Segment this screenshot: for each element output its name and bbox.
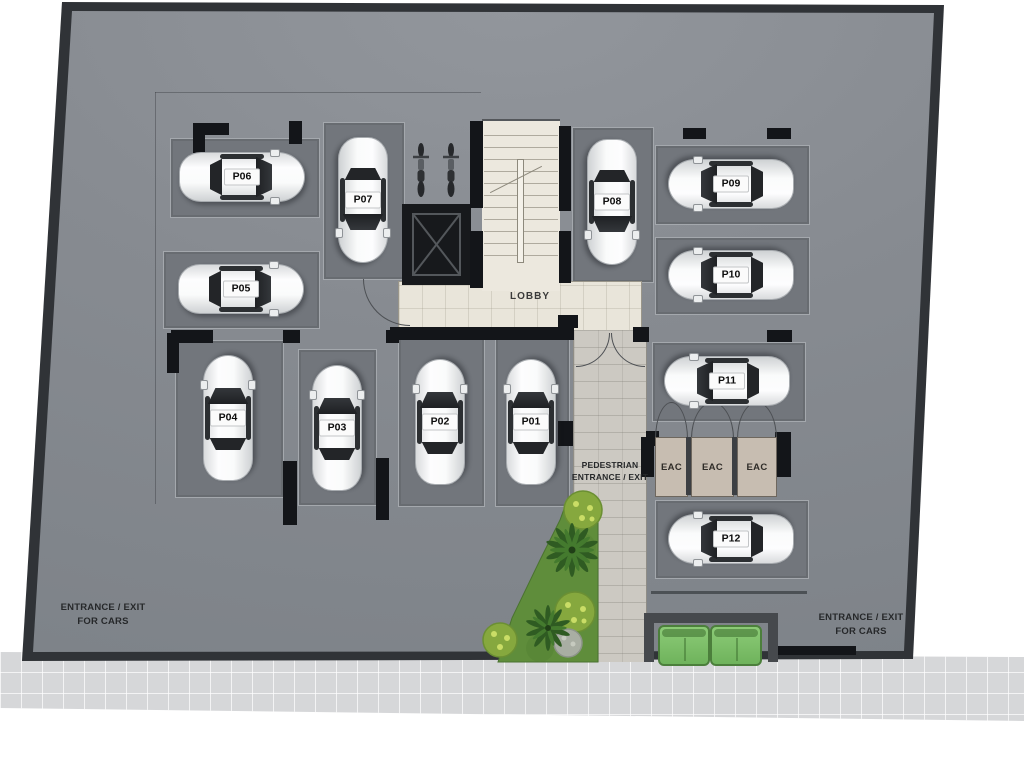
bush-icon [564, 491, 602, 529]
wall-segment [775, 432, 791, 477]
bush-icon [483, 623, 517, 657]
car-p11: P11 [663, 355, 791, 407]
stall-label-p07: P07 [345, 192, 381, 209]
motorcycle-icon [440, 142, 462, 200]
wall-segment [470, 121, 483, 208]
floor-plan-canvas: EAC EAC EAC [0, 0, 1024, 778]
car-p01: P01 [505, 358, 557, 486]
wall-segment [767, 330, 792, 342]
wall-segment [558, 421, 573, 446]
wall-segment [283, 461, 297, 525]
inner-boundary-line [155, 92, 481, 93]
entrance-exit-right-line1: ENTRANCE / EXIT [806, 611, 916, 625]
elevator-x-icon [402, 204, 471, 285]
entrance-exit-left-line2: FOR CARS [48, 615, 158, 629]
car-p05: P05 [177, 263, 305, 315]
bench-backrest [714, 629, 758, 637]
eac-label-1: EAC [661, 462, 682, 473]
eac-closet-1: EAC [655, 437, 688, 497]
wall-segment [167, 333, 179, 373]
stairs [482, 119, 560, 291]
pedestrian-entrance-line2: ENTRANCE / EXIT [563, 471, 657, 483]
wall-segment [470, 231, 483, 288]
stall-label-p10: P10 [713, 267, 749, 284]
stall-label-p02: P02 [422, 414, 458, 431]
eac-label-2: EAC [702, 462, 723, 473]
bench [658, 625, 710, 666]
wall-segment [559, 231, 571, 283]
bench-alcove-wall [768, 613, 778, 662]
stall-label-p03: P03 [319, 420, 355, 437]
elevator [402, 204, 471, 285]
wall-segment [386, 330, 399, 343]
car-p07: P07 [337, 136, 389, 264]
entrance-exit-cars-right-label: ENTRANCE / EXIT FOR CARS [806, 611, 916, 639]
bench-cushion-divider [736, 638, 738, 661]
pedestrian-entrance-line1: PEDESTRIAN [563, 459, 657, 471]
lobby-label: LOBBY [490, 291, 570, 302]
wall-segment [376, 458, 389, 520]
car-p08: P08 [586, 138, 638, 266]
wall-segment [283, 330, 300, 343]
car-p04: P04 [202, 354, 254, 482]
stall-label-p06: P06 [224, 169, 260, 186]
wall-segment [193, 123, 205, 153]
wall-segment [289, 121, 302, 144]
eac-closet-3: EAC [737, 437, 777, 497]
wall-segment [683, 128, 706, 139]
bench-alcove-wall [644, 613, 654, 662]
wall-line [651, 591, 807, 594]
car-p06: P06 [178, 151, 306, 203]
car-p12: P12 [667, 513, 795, 565]
inner-boundary-line [155, 92, 156, 504]
stall-label-p01: P01 [513, 414, 549, 431]
wall-segment [778, 646, 856, 655]
wall-segment [390, 327, 574, 340]
entrance-exit-right-line2: FOR CARS [806, 625, 916, 639]
stall-label-p09: P09 [713, 176, 749, 193]
stall-label-p04: P04 [210, 410, 246, 427]
wall-segment [767, 128, 791, 139]
bench [710, 625, 762, 666]
pedestrian-entrance-label: PEDESTRIAN ENTRANCE / EXIT [563, 459, 657, 484]
car-p09: P09 [667, 158, 795, 210]
car-p03: P03 [311, 364, 363, 492]
entrance-exit-left-line1: ENTRANCE / EXIT [48, 601, 158, 615]
car-p02: P02 [414, 358, 466, 486]
stall-label-p12: P12 [713, 531, 749, 548]
entrance-exit-cars-left-label: ENTRANCE / EXIT FOR CARS [48, 601, 158, 629]
green-area [480, 488, 610, 666]
bench-backrest [662, 629, 706, 637]
bench-cushion-divider [684, 638, 686, 661]
eac-label-3: EAC [747, 462, 768, 473]
bench-alcove-wall [644, 613, 778, 623]
car-p10: P10 [667, 249, 795, 301]
wall-segment [559, 126, 571, 211]
motorcycle-icon [410, 142, 432, 200]
stall-label-p05: P05 [223, 281, 259, 298]
stall-label-p11: P11 [709, 373, 745, 390]
stall-label-p08: P08 [594, 194, 630, 211]
eac-closet-2: EAC [691, 437, 734, 497]
wall-segment [558, 315, 578, 328]
